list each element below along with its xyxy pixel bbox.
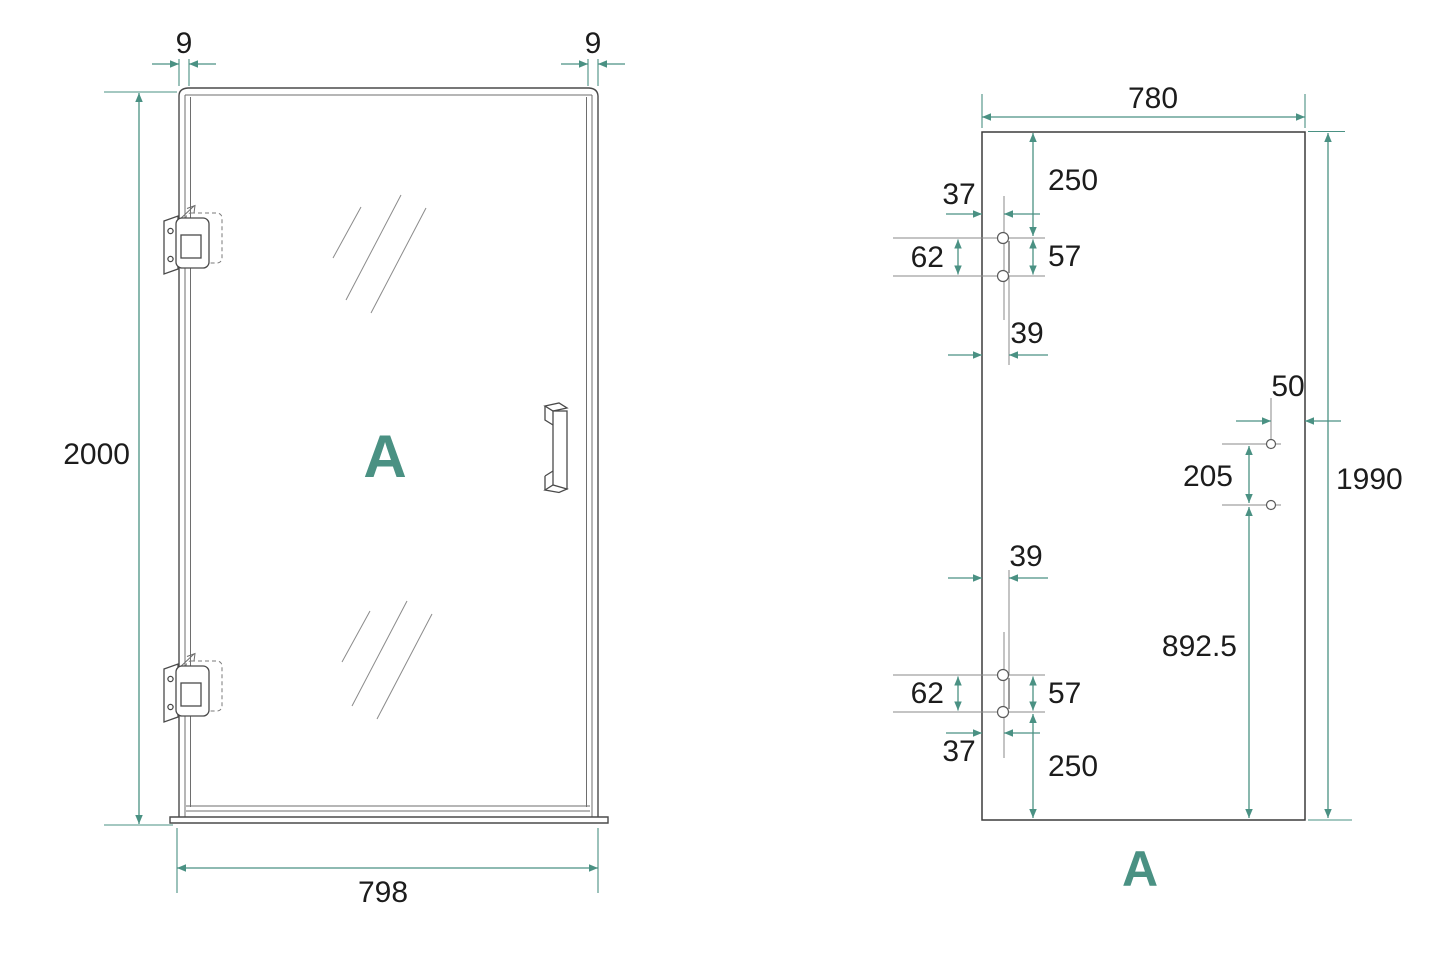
- shower-door-diagram: 9 9 2000 798 A: [0, 0, 1455, 960]
- door-view-label: A: [363, 423, 406, 490]
- dim-label-892: 892.5: [1162, 630, 1237, 663]
- dim-label-bottom-250: 250: [1048, 750, 1098, 783]
- dim-door-width: 798: [177, 828, 598, 909]
- dim-label-50: 50: [1271, 370, 1304, 403]
- dim-label-top-62: 62: [911, 241, 944, 274]
- cutout-radius-hole-icon: [998, 271, 1009, 282]
- dim-label-door-height: 2000: [63, 438, 130, 471]
- dim-glass-height: 1990: [1308, 132, 1403, 821]
- technical-drawing-page: 9 9 2000 798 A: [0, 0, 1455, 960]
- handle-hole-icon: [1267, 440, 1276, 449]
- bottom-hinge: [164, 654, 222, 723]
- handle-hole-icon: [1267, 501, 1276, 510]
- dim-door-height: 2000: [63, 92, 177, 825]
- dim-label-door-width: 798: [358, 876, 408, 909]
- extension-lines: [179, 59, 189, 86]
- dim-label-bottom-39: 39: [1009, 540, 1042, 573]
- dim-label-top-39: 39: [1010, 317, 1043, 350]
- glass-panel-outline: [982, 132, 1305, 820]
- dim-right-profile: 9: [561, 27, 625, 86]
- dim-label-glass-width: 780: [1128, 82, 1178, 115]
- dim-top-cutout-height-outer: 62: [911, 240, 958, 275]
- dim-label-top-37: 37: [942, 178, 975, 211]
- dim-label-left-profile: 9: [176, 27, 193, 60]
- door-handle: [545, 403, 567, 493]
- cutout-radius-hole-icon: [998, 707, 1009, 718]
- dim-label-bottom-62: 62: [911, 677, 944, 710]
- top-hinge: [164, 206, 222, 275]
- cutout-radius-hole-icon: [998, 670, 1009, 681]
- glass-view-label: A: [1122, 841, 1158, 897]
- bottom-rail: [186, 806, 590, 811]
- dim-label-205: 205: [1183, 460, 1233, 493]
- dim-label-top-250: 250: [1048, 164, 1098, 197]
- bottom-sill: [170, 817, 608, 823]
- handle-bar: [553, 411, 567, 489]
- dim-label-glass-height: 1990: [1336, 463, 1403, 496]
- cutout-radius-hole-icon: [998, 233, 1009, 244]
- door-elevation-view: 9 9 2000 798 A: [63, 27, 625, 909]
- handle-top-face: [545, 403, 567, 411]
- dim-glass-width: 780: [982, 82, 1305, 128]
- dim-label-top-57: 57: [1048, 240, 1081, 273]
- extension-lines: [588, 59, 598, 86]
- dim-label-bottom-37: 37: [942, 735, 975, 768]
- handle-standoffs: [545, 406, 553, 490]
- dim-left-profile: 9: [152, 27, 216, 86]
- glass-panel-view: 780 1990 250 37 62 57: [893, 82, 1403, 897]
- dim-label-bottom-57: 57: [1048, 677, 1081, 710]
- dim-label-right-profile: 9: [585, 27, 602, 60]
- dim-bottom-cutout-height-outer: 62: [911, 677, 958, 711]
